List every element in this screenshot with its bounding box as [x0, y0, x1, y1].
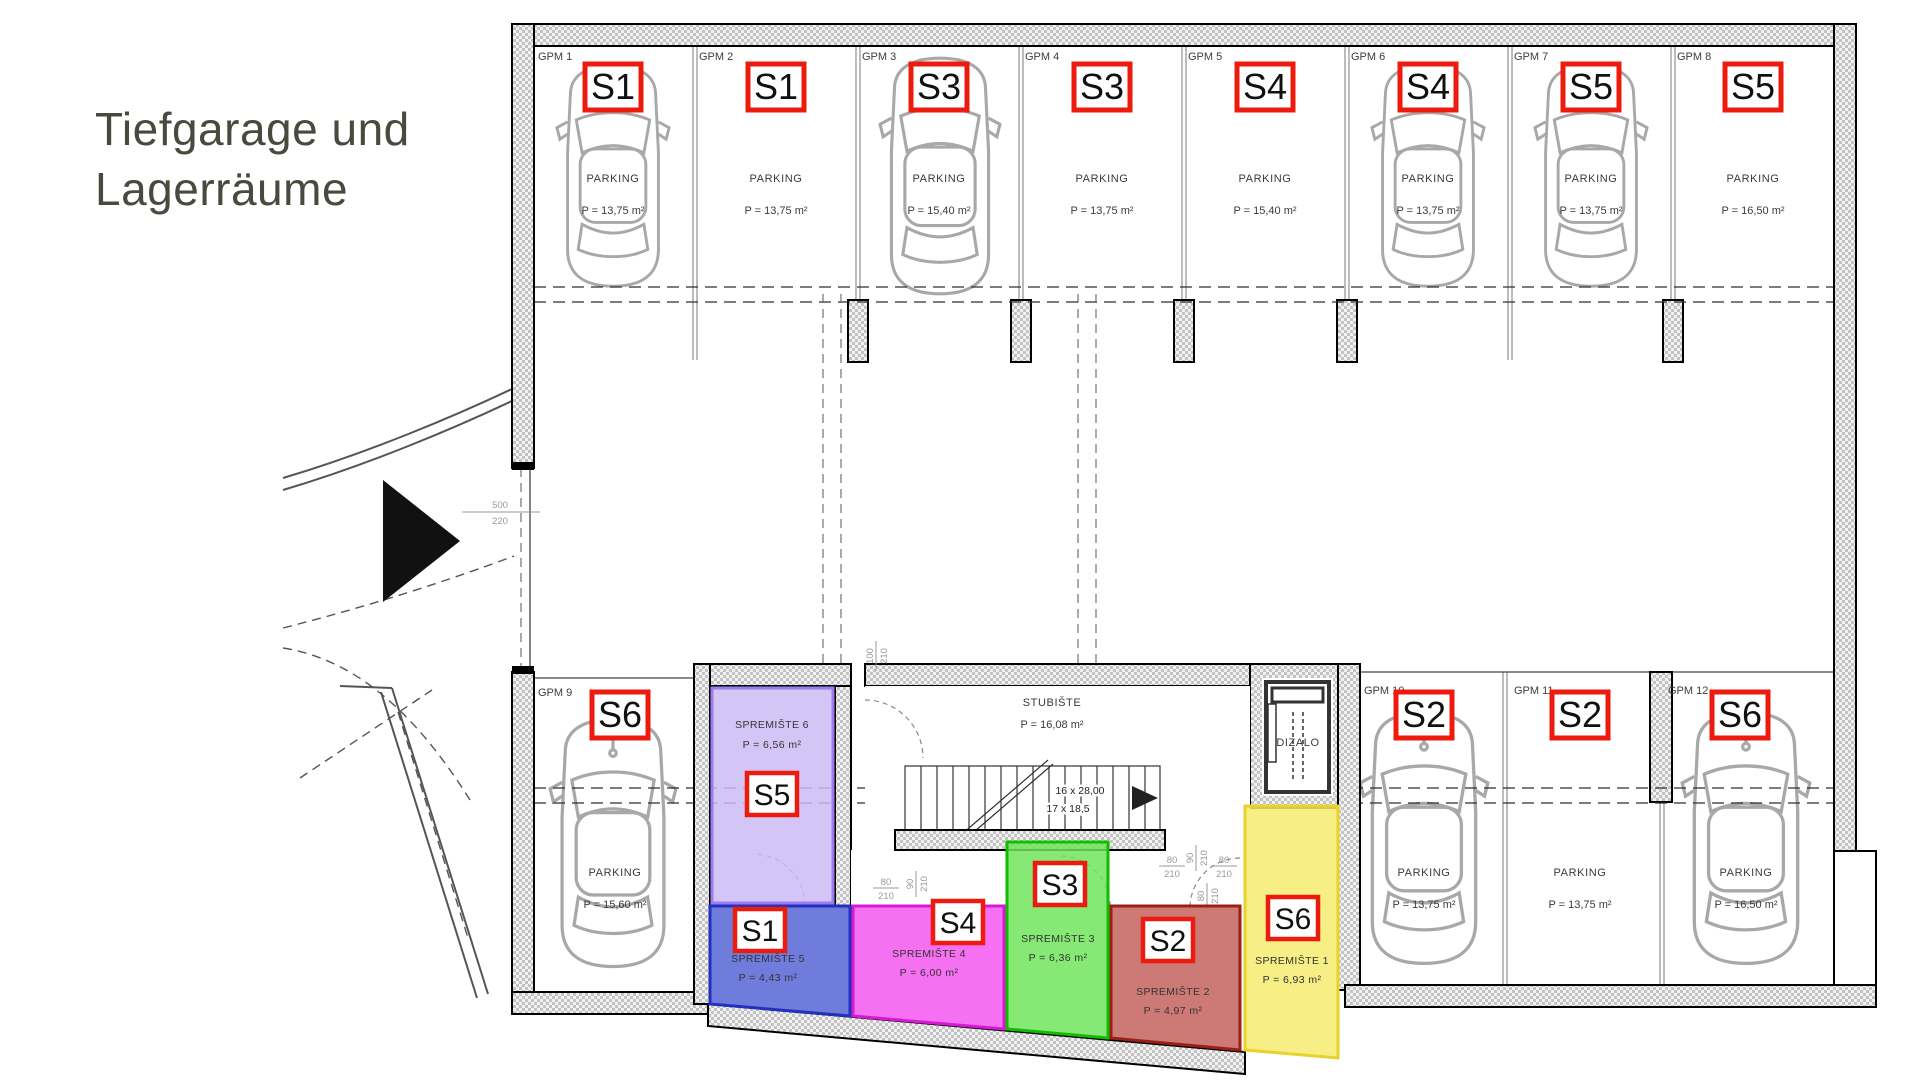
svg-text:GPM 7: GPM 7	[1514, 51, 1548, 63]
svg-text:S3: S3	[1042, 869, 1079, 902]
svg-text:210: 210	[879, 648, 890, 664]
unit-badge: S5	[1563, 64, 1619, 110]
unit-badge: S2	[1552, 692, 1608, 738]
svg-text:GPM 1: GPM 1	[538, 51, 572, 63]
svg-text:P = 15,40 m²: P = 15,40 m²	[1233, 205, 1296, 217]
svg-text:S5: S5	[1569, 66, 1613, 107]
svg-text:80: 80	[1219, 855, 1230, 866]
svg-text:P = 13,75 m²: P = 13,75 m²	[744, 205, 807, 217]
svg-text:GPM 3: GPM 3	[862, 51, 896, 63]
pillar	[1663, 300, 1683, 362]
svg-text:PARKING: PARKING	[913, 173, 966, 185]
svg-text:SPREMIŠTE 5: SPREMIŠTE 5	[731, 952, 805, 965]
svg-text:PARKING: PARKING	[1076, 173, 1129, 185]
svg-text:PARKING: PARKING	[750, 173, 803, 185]
svg-text:80: 80	[1196, 891, 1207, 902]
svg-text:17 x 18,5: 17 x 18,5	[1046, 803, 1089, 815]
unit-badge: S4	[1400, 64, 1456, 110]
svg-text:PARKING: PARKING	[1565, 173, 1618, 185]
svg-text:P = 13,75 m²: P = 13,75 m²	[581, 205, 644, 217]
svg-text:P = 16,08 m²: P = 16,08 m²	[1020, 719, 1083, 731]
svg-text:P = 13,75 m²: P = 13,75 m²	[1559, 205, 1622, 217]
svg-text:PARKING: PARKING	[1239, 173, 1292, 185]
svg-text:STUBIŠTE: STUBIŠTE	[1023, 696, 1082, 709]
svg-text:GPM 8: GPM 8	[1677, 51, 1711, 63]
svg-text:SPREMIŠTE 2: SPREMIŠTE 2	[1136, 985, 1210, 998]
svg-text:210: 210	[878, 891, 894, 902]
entrance-ramp: 500 220	[283, 388, 540, 998]
svg-text:S4: S4	[1243, 66, 1287, 107]
svg-text:GPM 11: GPM 11	[1514, 685, 1554, 697]
svg-text:80: 80	[881, 877, 892, 888]
unit-badge: S3	[1035, 863, 1085, 905]
svg-text:GPM 9: GPM 9	[538, 687, 572, 699]
pillar	[1174, 300, 1194, 362]
svg-text:S2: S2	[1150, 925, 1187, 958]
svg-text:DIZALO: DIZALO	[1276, 737, 1319, 749]
svg-text:SPREMIŠTE 6: SPREMIŠTE 6	[735, 718, 809, 731]
svg-text:S6: S6	[1275, 903, 1312, 936]
svg-text:PARKING: PARKING	[1554, 867, 1607, 879]
unit-badge: S3	[911, 64, 967, 110]
unit-badge: S2	[1143, 919, 1193, 961]
unit-badge: S2	[1396, 692, 1452, 738]
svg-text:P = 13,75 m²: P = 13,75 m²	[1392, 899, 1455, 911]
svg-text:SPREMIŠTE 1: SPREMIŠTE 1	[1255, 954, 1329, 967]
svg-text:GPM 6: GPM 6	[1351, 51, 1385, 63]
svg-text:S2: S2	[1402, 694, 1446, 735]
svg-text:16 x 28,00: 16 x 28,00	[1055, 785, 1104, 797]
svg-text:PARKING: PARKING	[1402, 173, 1455, 185]
svg-text:S3: S3	[917, 66, 961, 107]
svg-text:210: 210	[1210, 888, 1221, 904]
svg-text:P = 13,75 m²: P = 13,75 m²	[1070, 205, 1133, 217]
svg-text:S5: S5	[754, 779, 791, 812]
svg-text:210: 210	[1199, 850, 1210, 866]
unit-badge: S6	[592, 692, 648, 738]
car-icon	[1360, 713, 1488, 964]
svg-text:P = 13,75 m²: P = 13,75 m²	[1396, 205, 1459, 217]
svg-text:PARKING: PARKING	[1398, 867, 1451, 879]
svg-text:210: 210	[919, 876, 930, 892]
svg-text:P = 15,60 m²: P = 15,60 m²	[583, 899, 646, 911]
svg-text:P = 16,50 m²: P = 16,50 m²	[1721, 205, 1784, 217]
svg-text:210: 210	[1164, 869, 1180, 880]
svg-text:PARKING: PARKING	[589, 867, 642, 879]
unit-badge: S5	[1725, 64, 1781, 110]
door-niche	[1834, 851, 1876, 985]
svg-text:S1: S1	[754, 66, 798, 107]
svg-text:100: 100	[865, 648, 876, 664]
unit-badge: S3	[1074, 64, 1130, 110]
unit-badge: S6	[1268, 897, 1318, 939]
svg-text:SPREMIŠTE 3: SPREMIŠTE 3	[1021, 932, 1095, 945]
svg-text:S2: S2	[1558, 694, 1602, 735]
svg-text:S6: S6	[1718, 694, 1762, 735]
pillar	[1337, 300, 1357, 362]
car-icon	[550, 720, 676, 967]
svg-text:210: 210	[1216, 869, 1232, 880]
svg-text:P = 4,97 m²: P = 4,97 m²	[1144, 1005, 1203, 1017]
pillar	[848, 300, 868, 362]
unit-badge: S1	[585, 64, 641, 110]
unit-badge: S4	[1237, 64, 1293, 110]
svg-text:S4: S4	[1406, 66, 1450, 107]
svg-text:S6: S6	[598, 694, 642, 735]
svg-text:S3: S3	[1080, 66, 1124, 107]
svg-text:S5: S5	[1731, 66, 1775, 107]
svg-text:220: 220	[492, 516, 508, 527]
svg-text:P = 16,50 m²: P = 16,50 m²	[1714, 899, 1777, 911]
svg-text:GPM 2: GPM 2	[699, 51, 733, 63]
svg-text:GPM 12: GPM 12	[1668, 685, 1708, 697]
svg-text:PARKING: PARKING	[1727, 173, 1780, 185]
unit-badge: S6	[1712, 692, 1768, 738]
svg-text:PARKING: PARKING	[587, 173, 640, 185]
unit-badge: S5	[747, 773, 797, 815]
svg-text:P = 15,40 m²: P = 15,40 m²	[907, 205, 970, 217]
svg-text:S4: S4	[940, 907, 977, 940]
svg-text:S1: S1	[742, 915, 779, 948]
unit-badge: S1	[748, 64, 804, 110]
svg-text:90: 90	[905, 879, 916, 890]
drive-direction-arrow-icon	[383, 480, 460, 602]
svg-text:S1: S1	[591, 66, 635, 107]
svg-text:GPM 4: GPM 4	[1025, 51, 1059, 63]
ramp-dimension-label: 500 220	[462, 500, 540, 527]
svg-text:P = 4,43 m²: P = 4,43 m²	[739, 972, 798, 984]
svg-text:500: 500	[492, 500, 508, 511]
svg-text:80: 80	[1167, 855, 1178, 866]
svg-text:90: 90	[1185, 853, 1196, 864]
svg-text:P = 13,75 m²: P = 13,75 m²	[1548, 899, 1611, 911]
floor-plan: 500 220	[0, 0, 1920, 1080]
svg-text:P = 6,36 m²: P = 6,36 m²	[1029, 952, 1088, 964]
svg-text:P = 6,00 m²: P = 6,00 m²	[900, 967, 959, 979]
svg-text:GPM 5: GPM 5	[1188, 51, 1222, 63]
svg-text:SPREMIŠTE 4: SPREMIŠTE 4	[892, 947, 966, 960]
car-icon	[1682, 713, 1810, 964]
svg-text:PARKING: PARKING	[1720, 867, 1773, 879]
unit-badge: S1	[735, 909, 785, 951]
pillar	[1011, 300, 1031, 362]
elevator: DIZALO	[1262, 678, 1333, 796]
svg-text:P = 6,56 m²: P = 6,56 m²	[743, 739, 802, 751]
unit-badge: S4	[933, 901, 983, 943]
svg-text:P = 6,93 m²: P = 6,93 m²	[1263, 974, 1322, 986]
floor-plan-page: Tiefgarage und Lagerräume	[0, 0, 1920, 1080]
